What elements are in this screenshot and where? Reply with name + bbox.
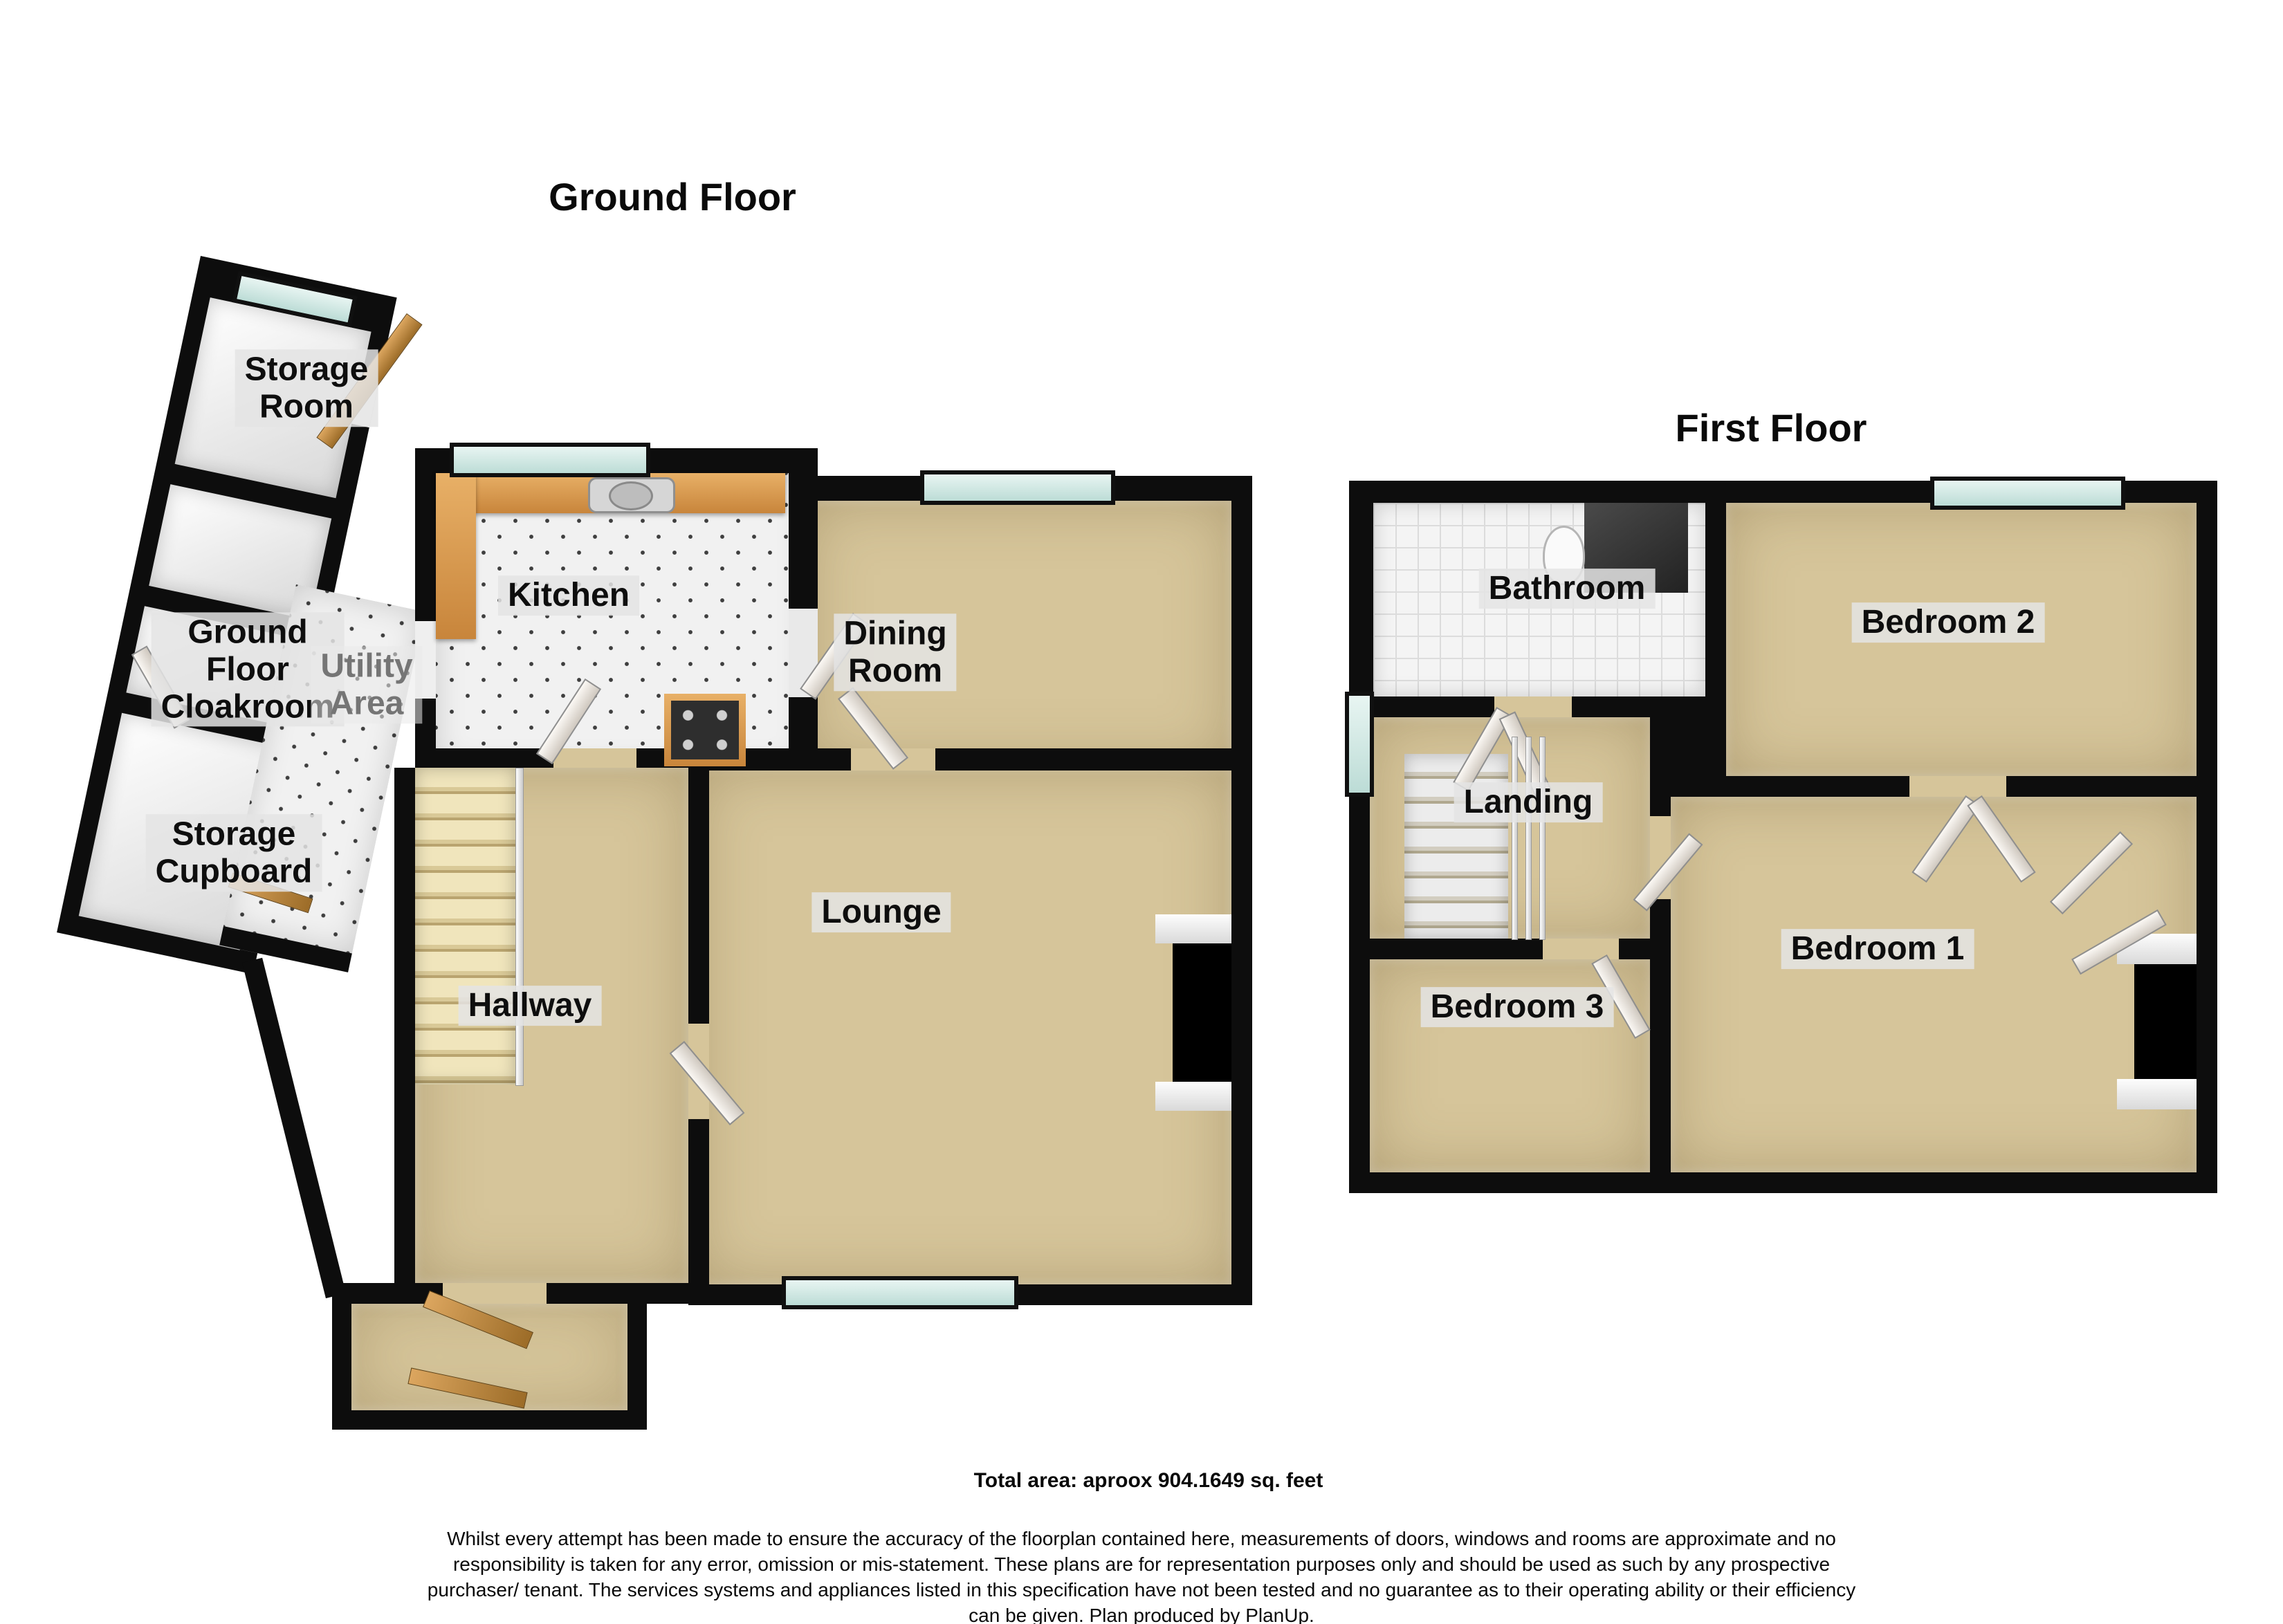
bathroom-label: Bathroom [1479,569,1656,609]
bedroom1-label: Bedroom 1 [1781,929,1974,969]
stove-hob-icon [671,701,739,759]
total-area-text: Total area: aproox 904.1649 sq. feet [974,1469,1323,1493]
room-lounge [699,768,1252,1305]
door-opening [1909,776,2006,797]
first-floor-title: First Floor [1676,405,1867,450]
stair-banister [515,768,524,1086]
kitchen-window-icon [450,443,650,477]
storage-room-label: Storage Room [235,349,378,427]
interior-wall [1349,939,1671,959]
bedroom2-label: Bedroom 2 [1852,602,2045,643]
kitchen-label: Kitchen [498,575,639,616]
outer-wall [242,958,346,1298]
first-floor-plan: Bathroom Bedroom 2 Landing Bedroom 1 Bed… [1314,415,2283,1280]
bedroom2-window-icon [1930,477,2125,510]
door-opening [443,1283,547,1304]
lounge-floor [699,768,1231,1284]
landing-banister [1512,737,1518,940]
lounge-window-icon [782,1276,1018,1309]
porch [332,1283,647,1430]
landing-window-icon [1345,692,1374,797]
storage-cupboard-label: Storage Cupboard [146,814,322,892]
room-hallway [394,768,709,1304]
lounge-label: Lounge [812,892,951,932]
fireplace-icon [1173,943,1231,1082]
kitchen-counter-left [436,473,476,639]
utility-area-label: Utility Area [311,646,422,723]
floorplan-page: Ground Floor First Floor [0,0,2283,1624]
dining-room-label: Dining Room [834,613,956,691]
staircase [415,768,515,1085]
hallway-label: Hallway [459,986,602,1026]
dining-window-icon [920,470,1115,505]
chimney-icon [2134,964,2197,1079]
disclaimer-text: Whilst every attempt has been made to en… [415,1526,1868,1624]
kitchen-sink-bowl-icon [609,481,653,510]
interior-wall [1705,481,1726,709]
landing-banister [1525,737,1532,940]
ground-floor-title: Ground Floor [549,174,796,219]
fireplace-side [1155,1082,1231,1111]
kitchen-stove-icon [664,694,746,766]
chimney-side [2117,1079,2197,1109]
interior-wall [789,448,818,768]
landing-label: Landing [1454,782,1603,822]
fireplace-side [1155,914,1231,943]
landing-banister [1539,737,1546,940]
bedroom3-label: Bedroom 3 [1421,987,1614,1027]
kitchen-floor [436,473,806,768]
